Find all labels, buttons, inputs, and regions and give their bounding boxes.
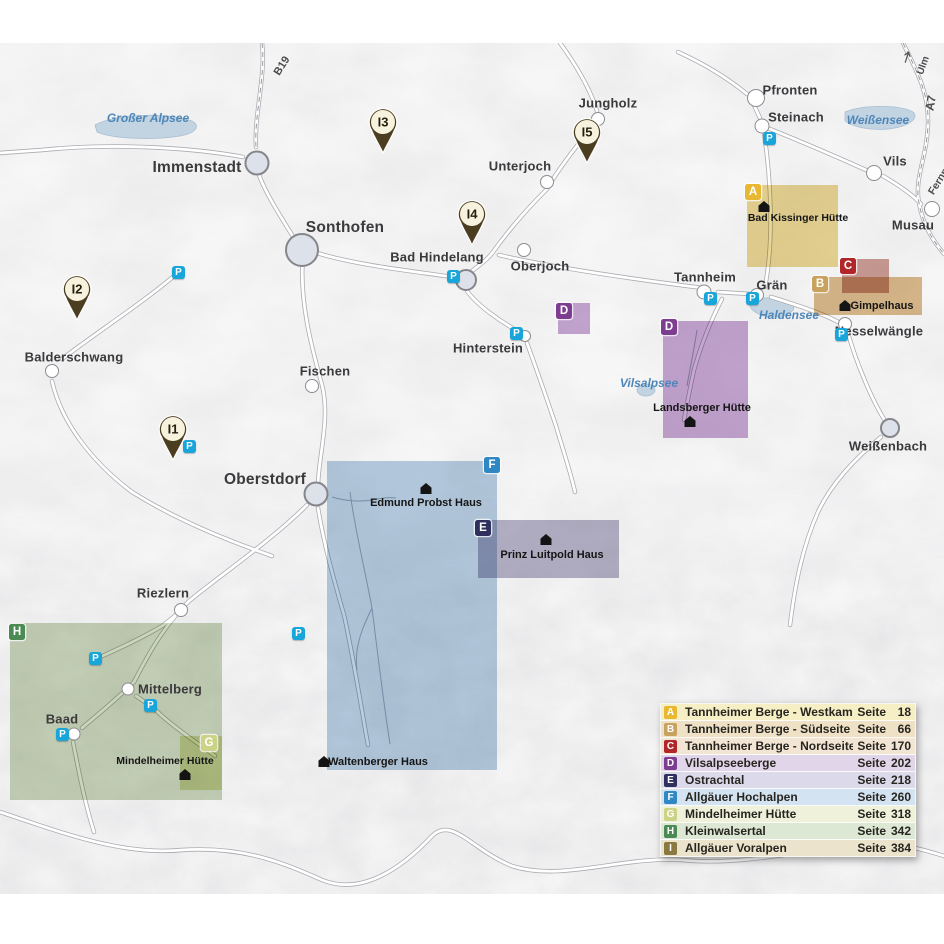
legend-badge-a: A: [664, 706, 677, 719]
legend-badge-c: C: [664, 740, 677, 753]
town-label-hinterstein: Hinterstein: [453, 341, 523, 356]
tour-pin-i4: I4: [455, 198, 489, 246]
legend-page-number: 384: [886, 841, 911, 855]
legend-name: Tannheimer Berge - Südseite: [685, 722, 853, 736]
legend-page-number: 66: [886, 722, 911, 736]
hut-icon-prinz-luitpold: [540, 534, 552, 545]
hut-label-prinz-luitpold: Prinz Luitpold Haus: [500, 549, 603, 561]
hut-icon-edmund-probst: [420, 483, 432, 494]
legend-page-number: 318: [886, 807, 911, 821]
parking-icon: P: [172, 266, 185, 279]
town-circle-musau: [924, 201, 940, 217]
town-label-musau: Musau: [892, 218, 934, 233]
hut-label-edmund-probst: Edmund Probst Haus: [370, 497, 482, 509]
town-circle-vils: [866, 165, 882, 181]
town-label-unterjoch: Unterjoch: [489, 159, 551, 174]
lake-label-weissensee: Weißensee: [847, 113, 909, 127]
hut-icon-gimpelhaus: [839, 300, 851, 311]
legend-page-word: Seite: [857, 841, 886, 855]
lake-label-vilsalpsee: Vilsalpsee: [620, 376, 678, 390]
region-badge-e: E: [475, 520, 491, 536]
town-label-tannheim: Tannheim: [674, 270, 736, 285]
town-circle-immenstadt: [245, 151, 270, 176]
parking-icon: P: [835, 328, 848, 341]
legend-page-number: 18: [886, 705, 911, 719]
region-badge-b: B: [812, 276, 828, 292]
hut-label-mindelheimer: Mindelheimer Hütte: [116, 755, 213, 767]
legend-row-b: B Tannheimer Berge - Südseite Seite 66: [661, 721, 915, 738]
legend-badge-f: F: [664, 791, 677, 804]
legend-page-word: Seite: [857, 705, 886, 719]
legend-badge-b: B: [664, 723, 677, 736]
legend-row-d: D Vilsalpseeberge Seite 202: [661, 755, 915, 772]
legend-page-word: Seite: [857, 790, 886, 804]
town-label-weissenbach: Weißenbach: [849, 439, 927, 454]
town-label-balderschwang: Balderschwang: [25, 350, 124, 365]
tour-pin-i3: I3: [366, 106, 400, 154]
region-badge-c: C: [840, 258, 856, 274]
legend-badge-d: D: [664, 757, 677, 770]
town-label-pfronten: Pfronten: [762, 83, 817, 98]
parking-icon: P: [704, 292, 717, 305]
legend-row-f: F Allgäuer Hochalpen Seite 260: [661, 789, 915, 806]
legend-badge-g: G: [664, 808, 677, 821]
legend-page-word: Seite: [857, 756, 886, 770]
legend-row-e: E Ostrachtal Seite 218: [661, 772, 915, 789]
parking-icon: P: [763, 132, 776, 145]
region-badge-a: A: [745, 184, 761, 200]
town-circle-baad: [68, 728, 81, 741]
parking-icon: P: [510, 327, 523, 340]
town-circle-unterjoch: [540, 175, 554, 189]
region-badge-f: F: [484, 457, 500, 473]
legend-name: Ostrachtal: [685, 773, 853, 787]
legend-page-word: Seite: [857, 807, 886, 821]
town-label-baad: Baad: [46, 712, 79, 727]
legend-name: Allgäuer Voralpen: [685, 841, 853, 855]
town-label-steinach: Steinach: [768, 110, 824, 125]
legend-badge-e: E: [664, 774, 677, 787]
region-badge-d-small: D: [556, 303, 572, 319]
legend-row-a: A Tannheimer Berge - Westkamm Seite 18: [661, 704, 915, 721]
legend-row-g: G Mindelheimer Hütte Seite 318: [661, 806, 915, 823]
parking-icon: P: [89, 652, 102, 665]
tour-pin-i1: I1: [156, 413, 190, 461]
svg-text:I4: I4: [467, 207, 479, 222]
hut-label-bad-kissinger: Bad Kissinger Hütte: [748, 212, 848, 224]
legend-page-word: Seite: [857, 773, 886, 787]
legend-name: Mindelheimer Hütte: [685, 807, 853, 821]
town-label-nesselwaengle: Nesselwängle: [835, 324, 923, 339]
legend-name: Tannheimer Berge - Nordseite: [685, 739, 853, 753]
legend-name: Kleinwalsertal: [685, 824, 853, 838]
tour-pin-i5: I5: [570, 116, 604, 164]
hut-icon-bad-kissinger: [758, 201, 770, 212]
town-label-riezlern: Riezlern: [137, 586, 189, 601]
town-circle-mittelberg: [122, 683, 135, 696]
legend-badge-h: H: [664, 825, 677, 838]
region-badge-h: H: [9, 624, 25, 640]
town-circle-oberstdorf: [304, 482, 329, 507]
town-label-mittelberg: Mittelberg: [138, 682, 202, 697]
region-badge-d: D: [661, 319, 677, 335]
legend-page-word: Seite: [857, 824, 886, 838]
svg-text:I1: I1: [168, 422, 179, 437]
town-circle-riezlern: [174, 603, 188, 617]
parking-icon: P: [144, 699, 157, 712]
legend-page-word: Seite: [857, 722, 886, 736]
legend-name: Allgäuer Hochalpen: [685, 790, 853, 804]
parking-icon: P: [447, 270, 460, 283]
town-label-jungholz: Jungholz: [579, 96, 638, 111]
legend-row-h: H Kleinwalsertal Seite 342: [661, 823, 915, 840]
legend-page-number: 342: [886, 824, 911, 838]
legend-row-c: C Tannheimer Berge - Nordseite Seite 170: [661, 738, 915, 755]
town-circle-weissenbach: [880, 418, 900, 438]
legend: A Tannheimer Berge - Westkamm Seite 18 B…: [660, 703, 916, 857]
town-label-immenstadt: Immenstadt: [153, 159, 242, 177]
tour-pin-i2: I2: [60, 273, 94, 321]
town-circle-balderschwang: [45, 364, 59, 378]
parking-icon: P: [56, 728, 69, 741]
town-circle-oberjoch: [517, 243, 531, 257]
hut-icon-landsberger: [684, 416, 696, 427]
legend-page-word: Seite: [857, 739, 886, 753]
town-label-graen: Grän: [756, 278, 787, 293]
lake-label-grosser-alpsee: Großer Alpsee: [107, 111, 189, 125]
town-label-bad-hindelang: Bad Hindelang: [390, 250, 484, 265]
region-badge-g: G: [201, 735, 217, 751]
legend-name: Tannheimer Berge - Westkamm: [685, 705, 853, 719]
town-label-sonthofen: Sonthofen: [306, 219, 384, 237]
road-label-a7: A7: [922, 94, 938, 112]
svg-text:I2: I2: [72, 282, 83, 297]
town-circle-fischen: [305, 379, 319, 393]
legend-page-number: 170: [886, 739, 911, 753]
legend-page-number: 202: [886, 756, 911, 770]
town-label-fischen: Fischen: [300, 364, 351, 379]
legend-page-number: 260: [886, 790, 911, 804]
hut-label-landsberger: Landsberger Hütte: [653, 402, 751, 414]
town-circle-sonthofen: [285, 233, 319, 267]
parking-icon: P: [746, 292, 759, 305]
town-label-oberstdorf: Oberstdorf: [224, 471, 306, 489]
svg-text:I5: I5: [582, 125, 593, 140]
town-label-vils: Vils: [883, 154, 907, 169]
hut-icon-mindelheimer: [179, 769, 191, 780]
lake-label-haldensee: Haldensee: [759, 308, 819, 322]
legend-badge-i: I: [664, 842, 677, 855]
legend-row-i: I Allgäuer Voralpen Seite 384: [661, 840, 915, 856]
legend-name: Vilsalpseeberge: [685, 756, 853, 770]
parking-icon: P: [292, 627, 305, 640]
hut-label-waltenberger: Waltenberger Haus: [328, 756, 428, 768]
town-label-oberjoch: Oberjoch: [511, 259, 570, 274]
svg-text:I3: I3: [378, 115, 389, 130]
legend-page-number: 218: [886, 773, 911, 787]
map-page: Immenstadt Sonthofen Oberstdorf Bad Hind…: [0, 0, 944, 944]
hut-label-gimpelhaus: Gimpelhaus: [851, 300, 914, 312]
